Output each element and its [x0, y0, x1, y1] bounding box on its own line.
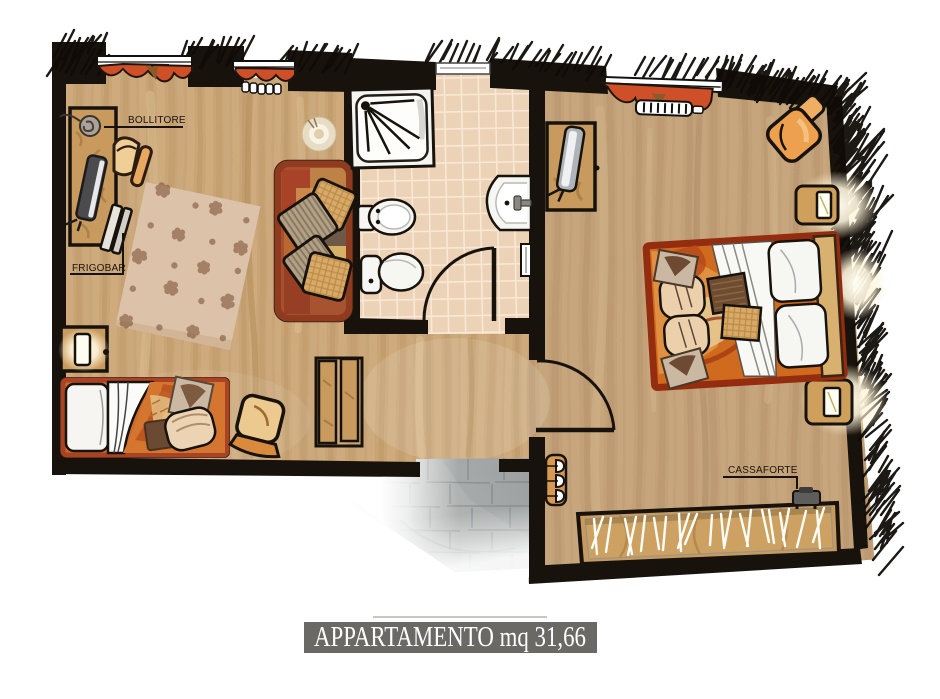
svg-text:BOLLITORE: BOLLITORE	[128, 115, 186, 126]
svg-text:FRIGOBAR: FRIGOBAR	[72, 263, 126, 274]
svg-text:CASSAFORTE: CASSAFORTE	[728, 465, 798, 476]
svg-text:APPARTAMENTO mq 31,66: APPARTAMENTO mq 31,66	[314, 622, 586, 653]
